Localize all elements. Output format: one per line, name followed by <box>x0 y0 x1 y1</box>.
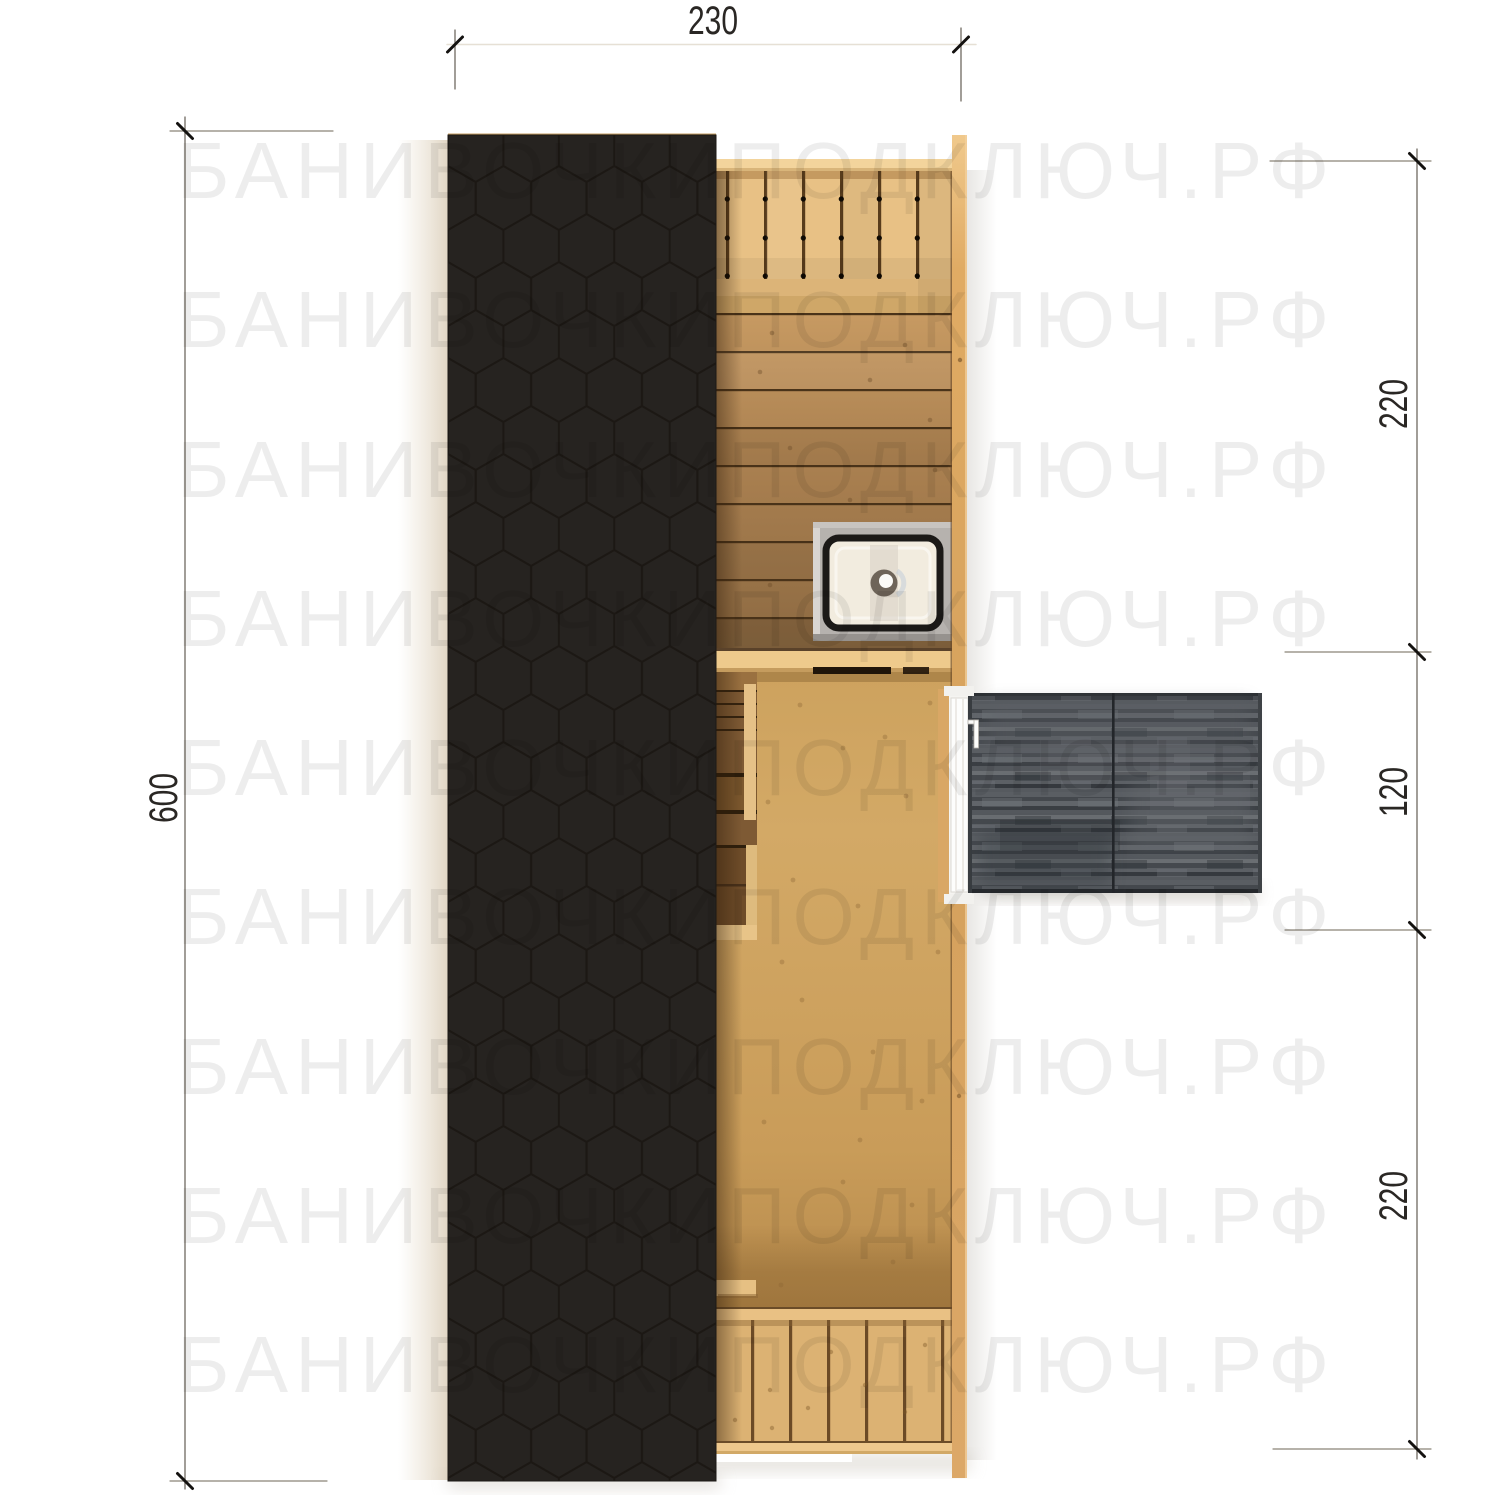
svg-text:220: 220 <box>1372 1171 1416 1221</box>
svg-text:БАНИВОЧКИПОДКЛЮЧ.РФ: БАНИВОЧКИПОДКЛЮЧ.РФ <box>177 1022 1336 1111</box>
svg-text:120: 120 <box>1372 767 1416 817</box>
svg-text:БАНИВОЧКИПОДКЛЮЧ.РФ: БАНИВОЧКИПОДКЛЮЧ.РФ <box>177 872 1336 961</box>
svg-text:БАНИВОЧКИПОДКЛЮЧ.РФ: БАНИВОЧКИПОДКЛЮЧ.РФ <box>177 126 1336 215</box>
svg-text:БАНИВОЧКИПОДКЛЮЧ.РФ: БАНИВОЧКИПОДКЛЮЧ.РФ <box>177 1171 1336 1260</box>
svg-text:БАНИВОЧКИПОДКЛЮЧ.РФ: БАНИВОЧКИПОДКЛЮЧ.РФ <box>177 425 1336 514</box>
svg-text:БАНИВОЧКИПОДКЛЮЧ.РФ: БАНИВОЧКИПОДКЛЮЧ.РФ <box>177 723 1336 812</box>
svg-text:230: 230 <box>688 0 738 43</box>
svg-text:БАНИВОЧКИПОДКЛЮЧ.РФ: БАНИВОЧКИПОДКЛЮЧ.РФ <box>177 574 1336 663</box>
svg-text:220: 220 <box>1372 379 1416 429</box>
svg-text:БАНИВОЧКИПОДКЛЮЧ.РФ: БАНИВОЧКИПОДКЛЮЧ.РФ <box>177 1320 1336 1409</box>
svg-text:БАНИВОЧКИПОДКЛЮЧ.РФ: БАНИВОЧКИПОДКЛЮЧ.РФ <box>177 275 1336 364</box>
